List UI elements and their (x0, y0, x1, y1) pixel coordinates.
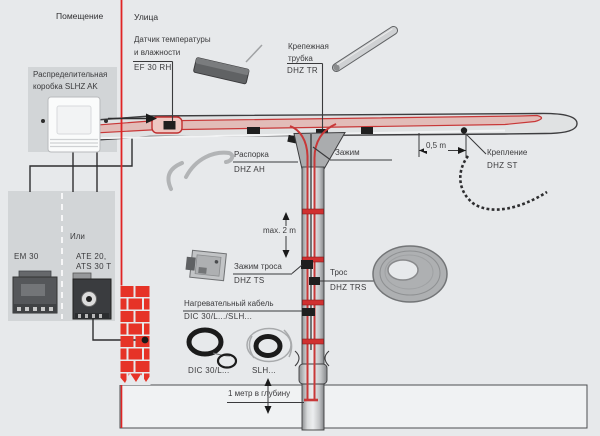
dim-depth-label: 1 метр в глубину (228, 389, 290, 399)
device-ate-label-1: ATE 20, (76, 252, 106, 262)
heating-cable-label: Нагревательный кабель (184, 299, 274, 309)
spacer-label: Распорка (234, 150, 269, 160)
slh-cable-coil-icon (247, 329, 292, 362)
coil-dic-label: DIC 30/L... (188, 366, 230, 376)
ground-band (120, 385, 587, 428)
device-ate-label-2: ATS 30 T (76, 262, 111, 272)
rope-coil-icon (373, 246, 447, 302)
rope-clamp-target (301, 260, 313, 269)
rope-clamp-icon (185, 250, 227, 281)
spacer-icon (168, 153, 232, 189)
rope-label: Трос (330, 268, 347, 278)
dim-downpipe-spacing: max. 2 m (261, 226, 298, 236)
spacer-code: DHZ AH (234, 165, 265, 175)
rope-target (309, 277, 320, 285)
clamp-label: Зажим (335, 148, 360, 158)
roof-gutter-heating-diagram: Помещение Улица Распределительная коробк… (0, 0, 600, 436)
rope-clamp-code: DHZ TS (234, 276, 265, 286)
junction-box-label-2: коробка SLHZ AK (33, 82, 98, 92)
gutter-fastener-dot (461, 127, 467, 133)
fastener-label: Крепление (487, 148, 527, 158)
sensor-icon (193, 45, 262, 84)
gutter-clamp-1 (247, 127, 260, 134)
em30-device-icon (13, 271, 57, 313)
gutter-clamp-4 (361, 127, 373, 134)
dic-cable-coil-icon (189, 330, 236, 368)
zone-indoor-label: Помещение (56, 11, 103, 21)
junction-box-icon (41, 97, 108, 152)
rope-clamp-label: Зажим троса (234, 262, 282, 272)
heating-cable-code: DIC 30/L.../SLH... (184, 312, 252, 322)
mounting-tube-icon (331, 25, 399, 73)
tube-label-2: трубка (288, 54, 313, 64)
fastener-code: DHZ ST (487, 161, 518, 171)
sensor-label-1: Датчик температуры (134, 35, 211, 45)
junction-box-label-1: Распределительная (33, 70, 107, 80)
dim-gutter-spacing: 0,5 m (424, 141, 448, 151)
ate-device-icon (73, 273, 111, 319)
gutter-sensor (164, 121, 176, 130)
fastener-leader (466, 134, 486, 154)
tube-label-1: Крепежная (288, 42, 329, 52)
sensor-code: EF 30 RH (134, 63, 172, 73)
brick-wall (121, 286, 150, 384)
downpipe (302, 167, 324, 430)
heating-cable-target (302, 308, 315, 316)
rope-code: DHZ TRS (330, 283, 367, 293)
device-or-label: Или (70, 232, 85, 242)
tube-code: DHZ TR (287, 66, 318, 76)
coil-slh-label: SLH... (252, 366, 276, 376)
zone-outdoor-label: Улица (134, 12, 158, 22)
sensor-label-2: и влажности (134, 48, 180, 58)
device-em-label: EM 30 (14, 252, 39, 262)
pipe-socket (299, 364, 327, 384)
wall-dot-overlay (142, 337, 149, 344)
